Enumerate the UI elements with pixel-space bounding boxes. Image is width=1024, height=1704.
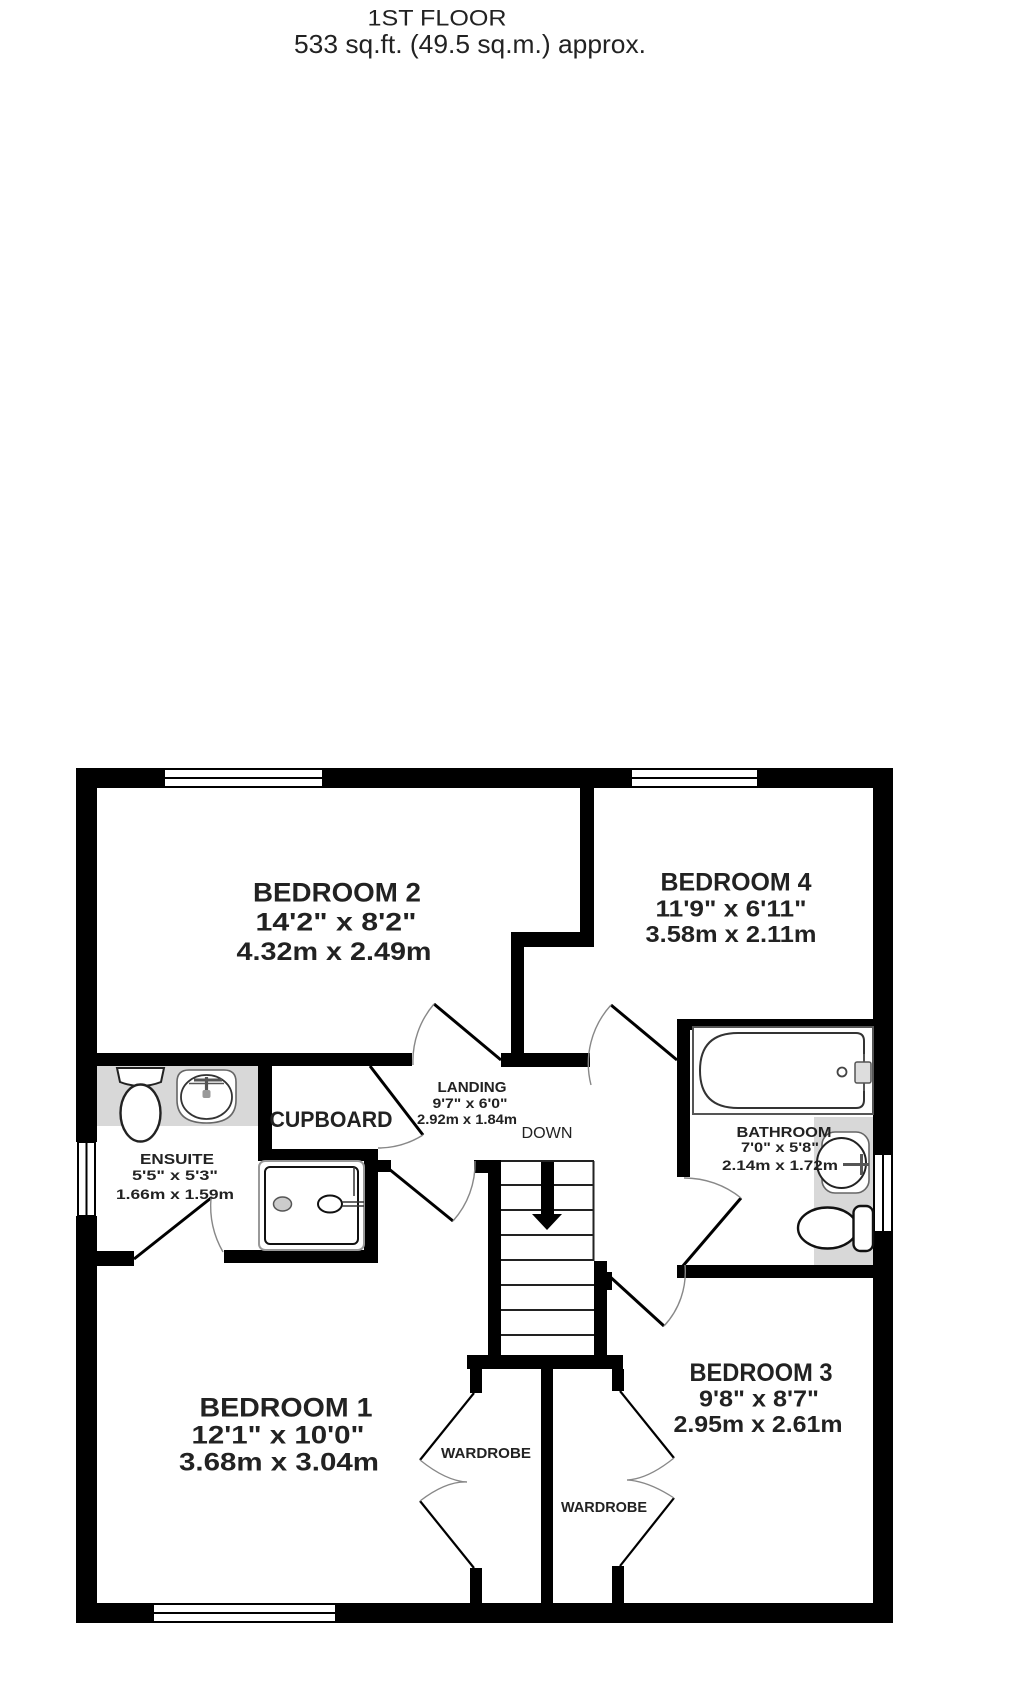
svg-text:2.95m x 2.61m: 2.95m x 2.61m — [674, 1411, 843, 1437]
svg-text:ENSUITE: ENSUITE — [140, 1151, 214, 1168]
svg-text:LANDING: LANDING — [438, 1079, 507, 1096]
svg-text:9'8" x 8'7": 9'8" x 8'7" — [699, 1386, 819, 1412]
svg-text:5'5" x 5'3": 5'5" x 5'3" — [132, 1167, 218, 1183]
svg-text:4.32m x 2.49m: 4.32m x 2.49m — [237, 938, 432, 966]
svg-text:WARDROBE: WARDROBE — [441, 1445, 531, 1462]
svg-text:BEDROOM 1: BEDROOM 1 — [200, 1393, 373, 1423]
svg-text:BEDROOM 3: BEDROOM 3 — [690, 1359, 833, 1387]
svg-text:7'0" x 5'8": 7'0" x 5'8" — [741, 1139, 819, 1155]
svg-text:BEDROOM 2: BEDROOM 2 — [253, 878, 421, 908]
svg-text:1ST FLOOR: 1ST FLOOR — [368, 6, 507, 31]
svg-text:533 sq.ft. (49.5 sq.m.) approx: 533 sq.ft. (49.5 sq.m.) approx. — [294, 29, 646, 59]
svg-text:2.14m x 1.72m: 2.14m x 1.72m — [722, 1157, 838, 1173]
svg-text:DOWN: DOWN — [522, 1125, 573, 1142]
svg-text:CUPBOARD: CUPBOARD — [270, 1107, 393, 1132]
svg-text:3.58m x 2.11m: 3.58m x 2.11m — [646, 921, 817, 947]
svg-text:BEDROOM 4: BEDROOM 4 — [661, 869, 812, 897]
svg-text:14'2" x 8'2": 14'2" x 8'2" — [256, 909, 417, 937]
svg-text:12'1" x 10'0": 12'1" x 10'0" — [192, 1422, 365, 1450]
svg-text:9'7" x 6'0": 9'7" x 6'0" — [433, 1095, 508, 1111]
svg-text:1.66m x 1.59m: 1.66m x 1.59m — [116, 1186, 234, 1202]
svg-text:WARDROBE: WARDROBE — [561, 1499, 647, 1516]
svg-text:2.92m x 1.84m: 2.92m x 1.84m — [417, 1111, 517, 1127]
svg-text:11'9" x 6'11": 11'9" x 6'11" — [656, 895, 807, 921]
svg-text:3.68m x 3.04m: 3.68m x 3.04m — [179, 1449, 379, 1477]
